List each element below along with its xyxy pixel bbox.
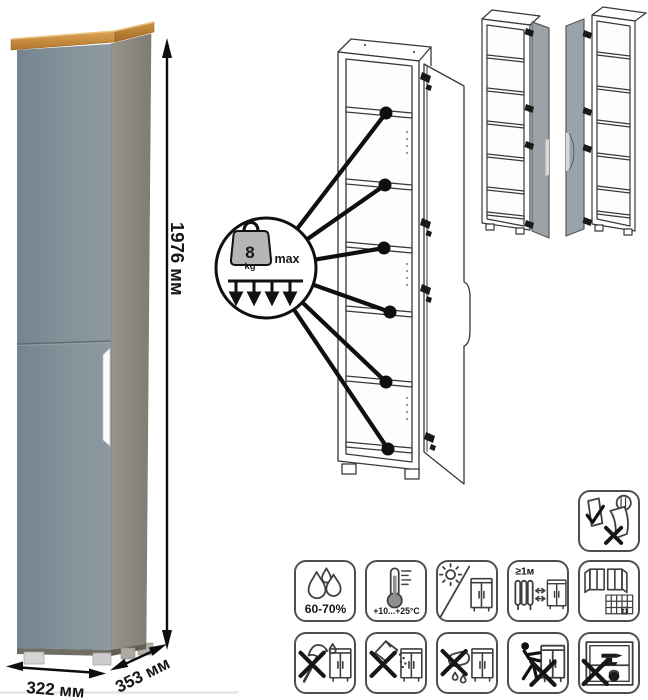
- depth-dimension-label: 353 мм: [112, 654, 173, 697]
- humidity-icon: 60-70%: [297, 563, 354, 620]
- load-value: 8: [245, 243, 254, 262]
- shelf-load-diagram: [338, 39, 470, 484]
- open-door: [424, 64, 470, 484]
- care-icon-no-pushing: [507, 632, 569, 694]
- arrowhead-down: [162, 630, 172, 650]
- diagram-foot-left: [342, 464, 356, 474]
- height-dimension-label: 1976 мм: [167, 222, 188, 296]
- calendar-day-label: 21: [621, 608, 628, 614]
- anvil-weight-crossed-icon: [581, 635, 638, 692]
- cabinet-side-panel: [111, 34, 151, 650]
- care-icon-no-direct-sunlight: [436, 560, 498, 622]
- person-pushing-crossed-icon: [510, 635, 567, 692]
- width-dimension-label: 322 мм: [26, 678, 86, 700]
- dimension-width: 322 мм: [6, 662, 106, 700]
- care-icon-humidity: 60-70%: [294, 560, 356, 622]
- wet-sponge-crossed-icon: [439, 635, 496, 692]
- arrowhead-up: [162, 38, 172, 58]
- door-option-left-hinged: [566, 7, 646, 236]
- option-b-door: [566, 19, 584, 236]
- heat-distance-label: ≥1м: [515, 566, 534, 577]
- furniture-spec-sheet: 1976 мм 322 мм 353 мм: [0, 0, 648, 700]
- cabinet-render: [0, 22, 238, 693]
- radiator-distance-icon: ≥1м: [510, 563, 567, 620]
- door-check-icon: [581, 493, 638, 550]
- temperature-label: +10...+25°C: [373, 605, 420, 615]
- sun-icon: [439, 563, 496, 620]
- care-icon-temperature: +10...+25°C: [365, 560, 427, 622]
- axe-crossed-icon: [297, 635, 354, 692]
- cabinet-foot-right: [93, 653, 111, 665]
- cabinet-foot-side: [121, 648, 135, 659]
- care-icon-door-alignment: [578, 490, 640, 552]
- care-icon-no-wet-cleaning: [436, 632, 498, 694]
- cabinet-foot-left: [24, 652, 44, 664]
- temperature-icon: +10...+25°C: [368, 563, 425, 620]
- dimension-height: 1976 мм: [162, 38, 188, 650]
- arrowhead-left: [6, 662, 23, 672]
- arrowhead-right: [89, 669, 106, 679]
- cabinet-door-front: [17, 44, 111, 650]
- care-icon-no-sharp-tools: [294, 632, 356, 694]
- load-unit: kg: [244, 261, 255, 272]
- care-icon-ventilation: 21: [578, 560, 640, 622]
- diagram-foot-right: [405, 469, 419, 479]
- care-icon-heat-distance: ≥1м: [507, 560, 569, 622]
- window-calendar-icon: 21: [581, 563, 638, 620]
- option-a-handle: [546, 139, 550, 176]
- arrowhead-depth-near: [110, 659, 128, 671]
- shelf-load-badge: 8 kg max: [216, 218, 316, 318]
- load-qualifier: max: [274, 252, 299, 266]
- powder-box-crossed-icon: [368, 635, 425, 692]
- door-handle: [103, 348, 110, 446]
- option-a-door: [532, 22, 549, 238]
- care-icon-no-overloading: [578, 632, 640, 694]
- door-option-right-hinged: [482, 10, 549, 238]
- care-icon-no-abrasives: [365, 632, 427, 694]
- humidity-label: 60-70%: [304, 601, 346, 615]
- option-b-handle: [566, 132, 570, 171]
